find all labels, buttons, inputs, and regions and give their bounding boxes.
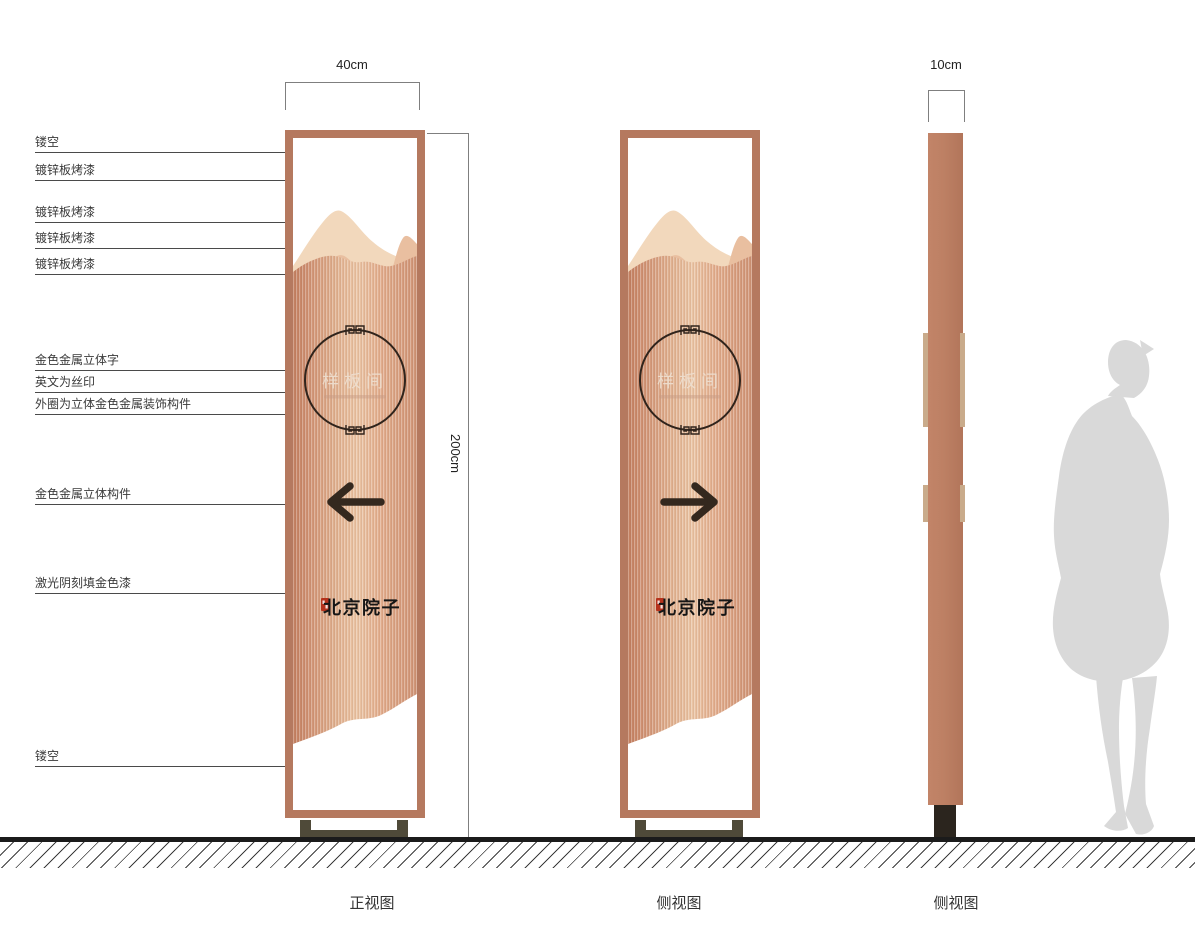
- signage-design-sheet: 镂空 镀锌板烤漆 镀锌板烤漆 镀锌板烤漆 镀锌板烤漆 金色金属立体字 英文为丝印…: [0, 0, 1195, 927]
- annotation-gold-metal-letters: 金色金属立体字: [35, 351, 119, 368]
- brand-text: 北京院子: [323, 597, 401, 618]
- side-profile-ornament-strip: [960, 485, 965, 522]
- leader-line-galvanized-3: [35, 248, 296, 249]
- side-profile-foot: [934, 805, 956, 838]
- leader-line-hollow-top: [35, 152, 305, 153]
- view-label-side-1: 侧视图: [656, 892, 701, 913]
- annotation-hollow-bottom: 镂空: [35, 747, 59, 764]
- english-silkscreen-line: [324, 395, 386, 399]
- dimension-width-line: [285, 82, 420, 83]
- dimension-width-tick-left: [285, 82, 286, 110]
- dimension-width-tick-right: [419, 82, 420, 110]
- annotation-galvanized-paint-1: 镀锌板烤漆: [35, 161, 95, 178]
- leader-line-english-silkscreen: [35, 392, 322, 393]
- view-label-side-2: 侧视图: [933, 892, 978, 913]
- annotation-english-silkscreen: 英文为丝印: [35, 373, 95, 390]
- human-scale-silhouette: [1040, 336, 1195, 838]
- leader-line-galvanized-1: [35, 180, 290, 181]
- leader-line-outer-ring: [35, 414, 313, 415]
- dimension-height-tick-top: [427, 133, 468, 134]
- room-name-text: 样板间: [322, 372, 388, 391]
- side-profile-column: [928, 133, 963, 805]
- second-view-sign: 样板间 北京院子: [620, 130, 760, 818]
- side-profile-ornament-strip: [923, 485, 928, 522]
- leader-line-galvanized-4: [35, 274, 293, 275]
- side-profile-ornament-strip: [923, 333, 928, 427]
- dimension-width-label: 40cm: [336, 57, 368, 72]
- dimension-depth-line: [928, 90, 965, 91]
- annotation-galvanized-paint-2: 镀锌板烤漆: [35, 203, 95, 220]
- annotation-galvanized-paint-4: 镀锌板烤漆: [35, 255, 95, 272]
- dimension-depth-label: 10cm: [930, 57, 962, 72]
- dimension-depth-tick-left: [928, 90, 929, 122]
- annotation-gold-metal-component: 金色金属立体构件: [35, 485, 131, 502]
- dimension-depth-tick-right: [964, 90, 965, 122]
- annotation-outer-ring-ornament: 外圈为立体金色金属装饰构件: [35, 395, 191, 412]
- leader-line-hollow-bottom: [35, 766, 298, 767]
- side-profile-ornament-strip: [960, 333, 965, 427]
- dimension-height-label: 200cm: [448, 434, 463, 473]
- annotation-hollow-top: 镂空: [35, 133, 59, 150]
- annotation-laser-engraved-gold: 激光阴刻填金色漆: [35, 574, 131, 591]
- ground-hatch: [0, 842, 1195, 868]
- brand-logo: 北京院子: [656, 597, 736, 618]
- leader-line-galvanized-2: [35, 222, 322, 223]
- room-name-text: 样板间: [657, 372, 723, 391]
- leader-line-gold-letters: [35, 370, 323, 371]
- front-view-sign: 样板间 北京院子: [285, 130, 425, 818]
- annotation-galvanized-paint-3: 镀锌板烤漆: [35, 229, 95, 246]
- brand-logo: 北京院子: [321, 597, 401, 618]
- dimension-height-line: [468, 133, 469, 838]
- view-label-front: 正视图: [349, 892, 394, 913]
- brand-text: 北京院子: [658, 597, 736, 618]
